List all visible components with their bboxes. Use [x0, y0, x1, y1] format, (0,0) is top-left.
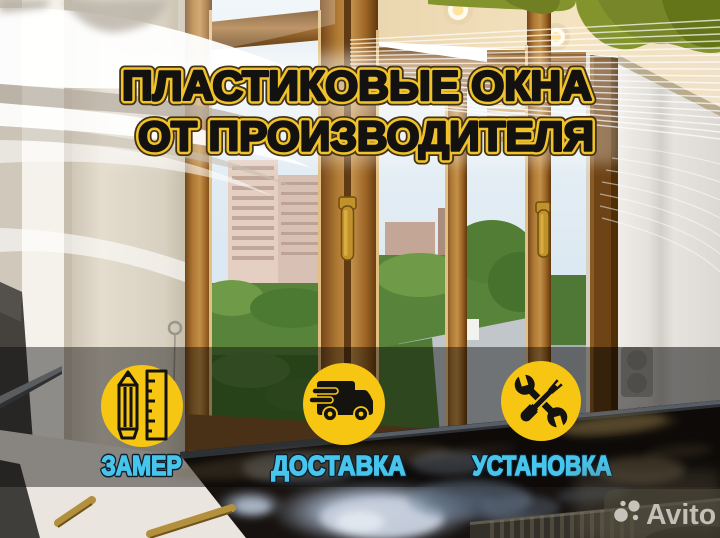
- svg-text:ПЛАСТИКОВЫЕ ОКНА: ПЛАСТИКОВЫЕ ОКНА: [122, 62, 592, 109]
- svg-text:Avito: Avito: [646, 499, 716, 531]
- svg-text:ОТ ПРОИЗВОДИТЕЛЯ: ОТ ПРОИЗВОДИТЕЛЯ: [138, 113, 594, 160]
- svg-text:ЗАМЕР: ЗАМЕР: [102, 450, 182, 481]
- svg-text:ДОСТАВКА: ДОСТАВКА: [272, 450, 406, 481]
